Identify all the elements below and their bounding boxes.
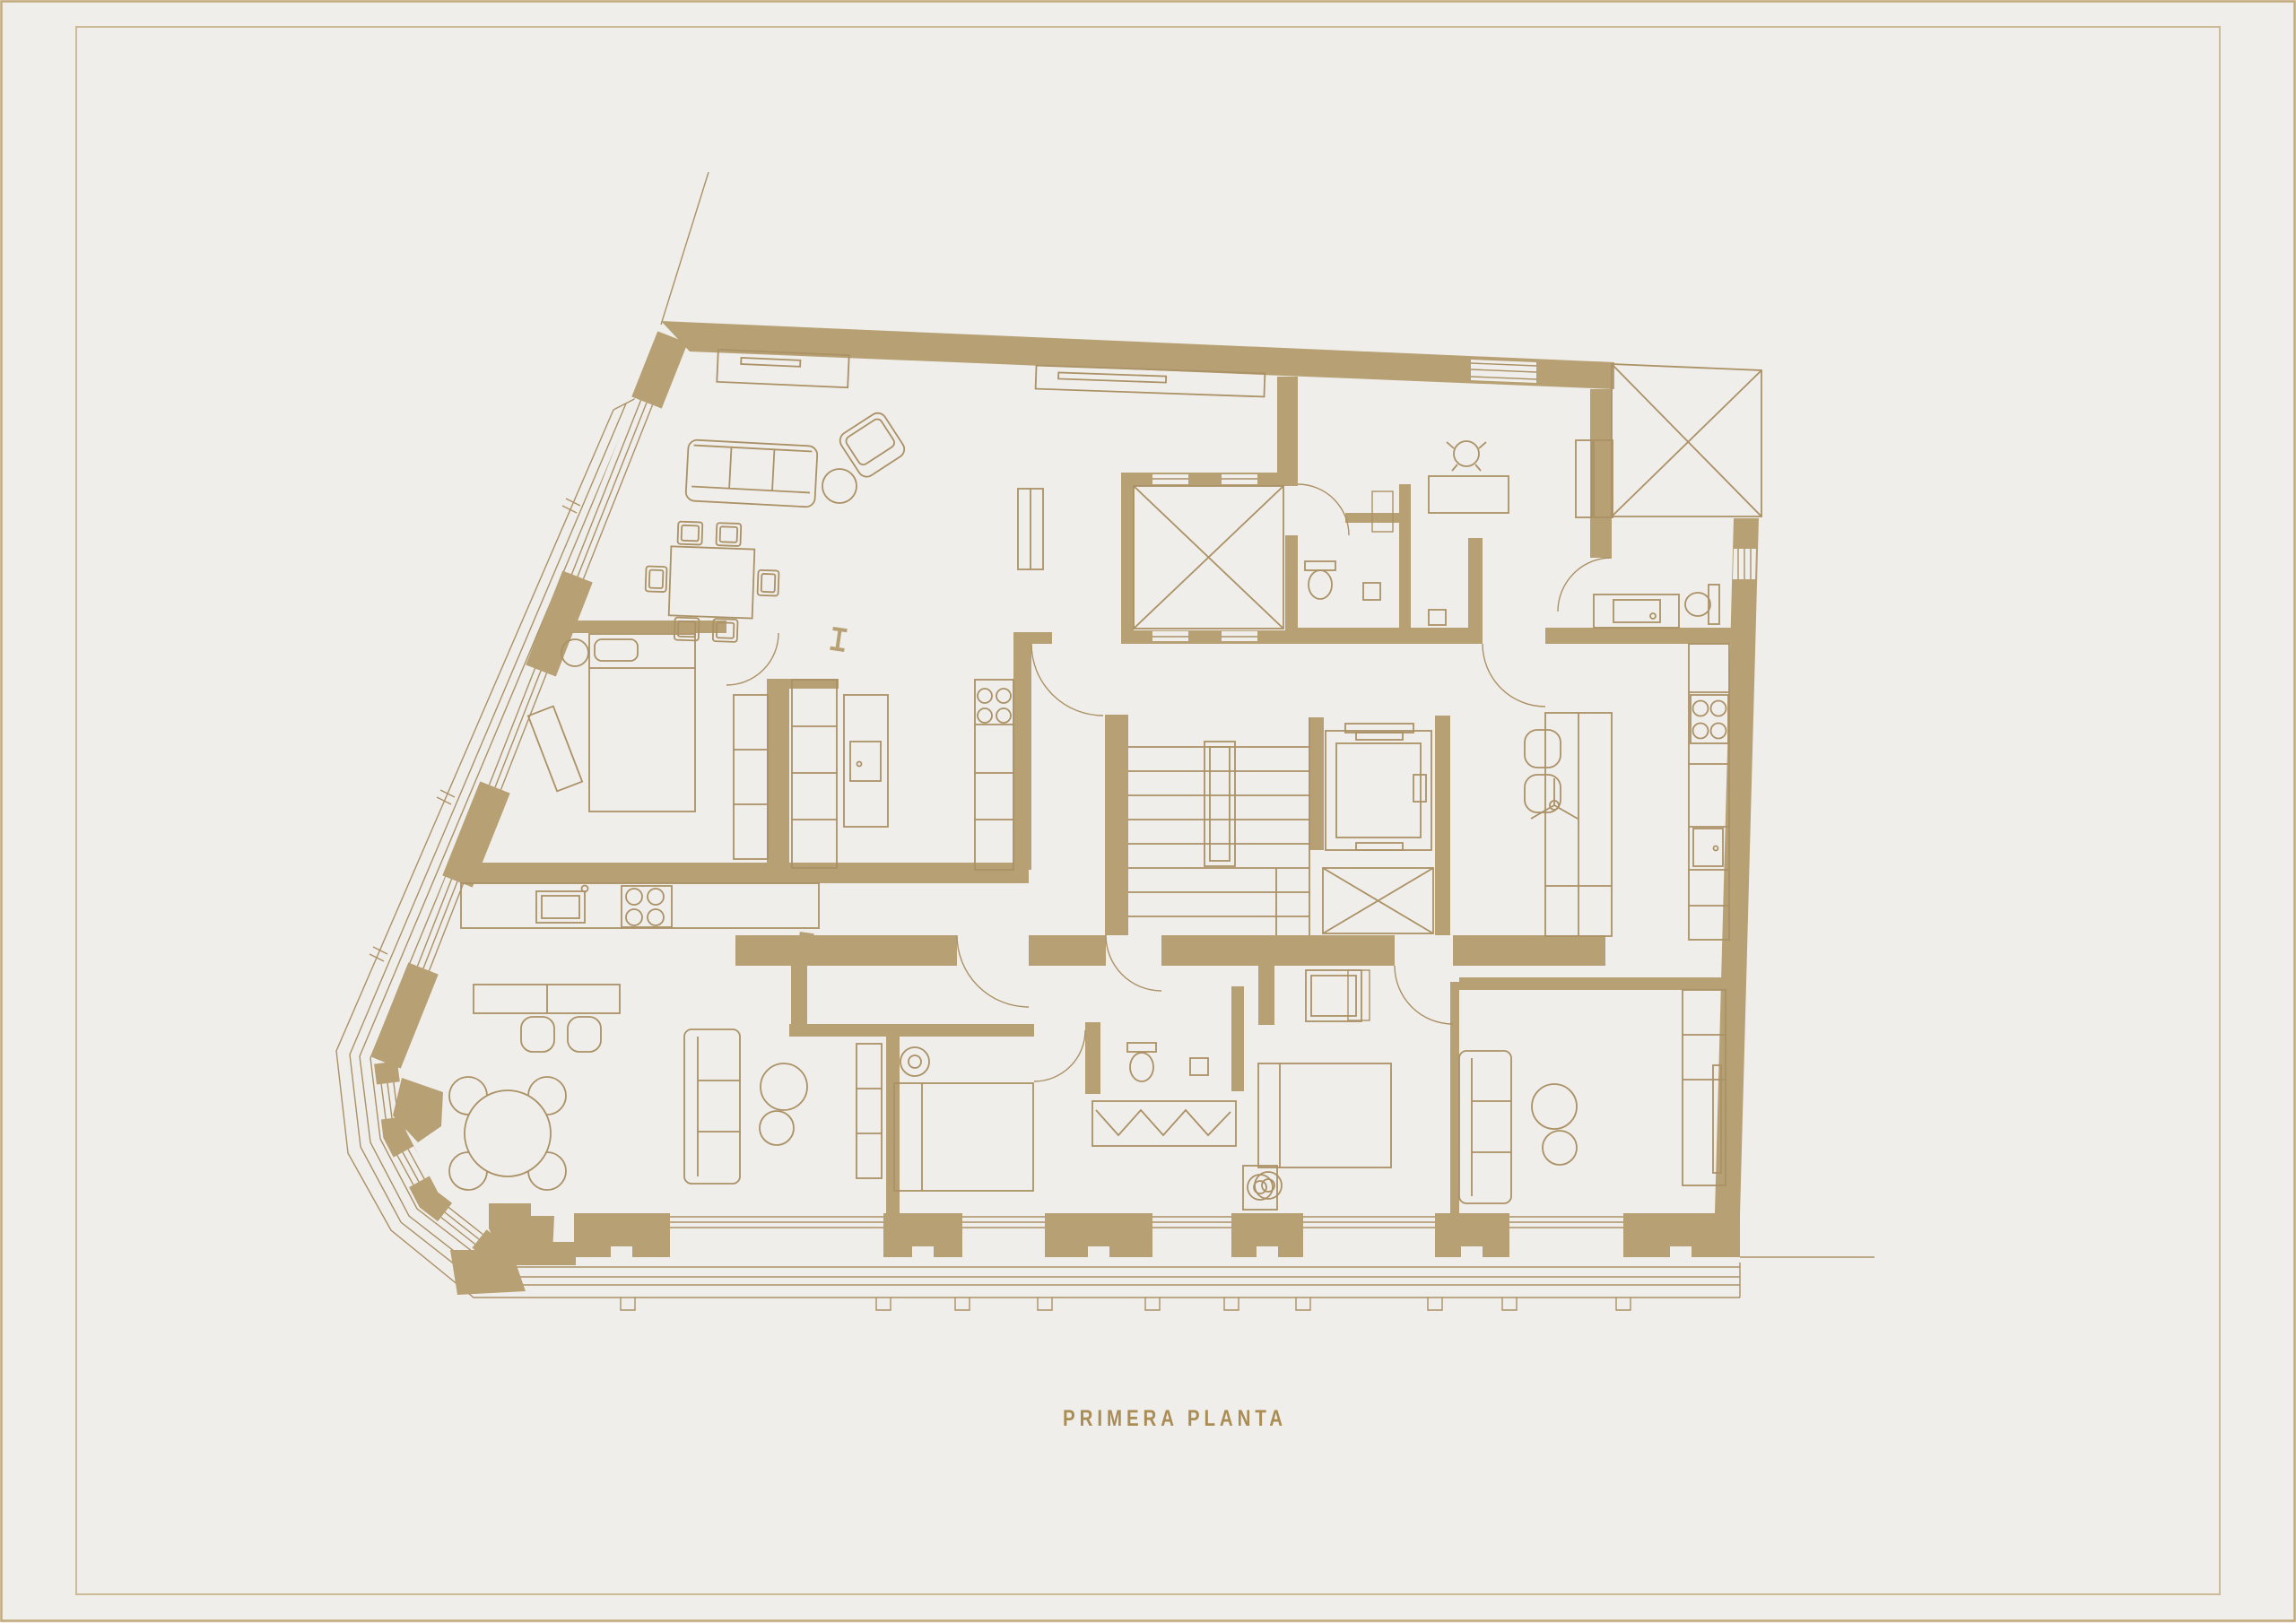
island [1545,713,1612,936]
vanity [1594,595,1679,628]
stool [561,639,588,666]
elevator-car [1336,743,1421,838]
stair-left-wall [1105,715,1128,935]
door-kitchen-corridor [1031,644,1103,716]
desk-chair [1447,441,1486,471]
kitchen-right-wall [1013,632,1031,870]
living-divider-wall [1277,377,1298,473]
patio-top-wall [1121,473,1298,486]
page-frame [2,2,2295,1621]
apt2-bath-wall [1085,1022,1100,1094]
door-bedroom1 [726,633,778,685]
cooktop [1691,695,1728,743]
floor-plan-page: PRIMERA PLANTA [0,0,2296,1623]
deskroom-wall [1468,538,1483,630]
counter [461,883,819,928]
section-marker-icon [831,629,848,650]
side-table [760,1111,794,1145]
side-table [1532,1084,1577,1129]
elevator-right-wall [1435,716,1450,935]
side-table [761,1063,807,1110]
hanging-closet [1092,1101,1236,1146]
bench [528,707,582,792]
closet [1576,440,1592,517]
stair-stringer [1205,742,1235,866]
apt2-top-wall [789,1024,886,1037]
washbasin [1363,583,1380,600]
door-right-hall [1483,644,1545,707]
door-leaf-1 [1372,491,1393,532]
door-annex-room [1558,558,1612,612]
desk [1429,476,1509,513]
balcony-rail-3 [350,404,1740,1285]
column [489,1203,554,1254]
property-line-top [661,172,709,325]
shower [1306,970,1361,1021]
bedroom-divider-wall [1450,982,1459,1213]
section-markers [797,629,848,955]
side-table [822,469,857,503]
island [474,985,620,1013]
pillow [595,639,638,661]
balcony-rail-2 [360,400,1740,1277]
tall-units [792,680,888,868]
outer-border [2,2,2295,1621]
patio-light-well [1134,474,1283,641]
plan-title: PRIMERA PLANTA [1063,1406,1287,1432]
sofa [1459,1051,1511,1203]
armchair [837,410,908,481]
wardrobe [734,695,768,859]
patio-left-wall [1121,473,1134,644]
nightstand [900,1047,929,1076]
corridor-band-4 [1453,935,1605,966]
balcony-rails [336,393,1740,1310]
core-rooms [1305,440,1719,628]
annex-light-well [1612,364,1761,516]
door-hall [1106,935,1161,991]
corridor-band-3 [1161,935,1395,966]
kitchen-left-wall [767,679,789,870]
balcony-rail-1 [370,395,1740,1267]
elevator-door-inner [1356,733,1403,740]
sink [536,886,588,924]
sofa-3-seat [685,439,817,507]
bath-divider-wall [1399,484,1411,628]
wall-cooktop-unit [975,680,1013,870]
bed [894,1083,1033,1191]
wall-counter [1689,644,1729,940]
door-bath [1298,484,1349,535]
patio-right-wall [1285,535,1298,644]
oven [1693,829,1723,866]
round-table [465,1090,551,1176]
hall-vertical-wall [791,966,807,1024]
stool [521,1017,554,1052]
bedroom1-furniture [528,634,768,859]
apt2-bedroom-top-wall [886,1024,1034,1037]
toilet [1127,1043,1156,1081]
stool [1525,730,1561,768]
interior-walls [461,377,1735,1213]
door-bedroom2 [1395,966,1453,1024]
staircase [1128,717,1309,935]
bedroom1-top-wall [552,621,726,633]
apt2-bedroom-left-wall [886,1024,900,1213]
elevator [1326,724,1431,850]
patio-bottom-wall [1121,630,1298,644]
bed [1258,1063,1391,1167]
apt3-bath-wall [1258,966,1274,1025]
terrace [449,1077,566,1190]
bedroom2-top-wall [1459,977,1733,990]
corridor-band-1 [735,935,957,966]
living-room-furniture [644,350,1265,644]
floor-plan-drawing [0,0,2296,1623]
elevator-door-bottom [1356,843,1403,850]
elevator-shaft [1326,731,1431,850]
stool [1525,775,1561,812]
exterior-walls [381,321,1759,1295]
balcony-bracket-line [336,393,1740,1298]
stair-steps [1128,717,1309,935]
hall-band-right [1545,628,1735,644]
stool [568,1017,601,1052]
washbasin [1190,1058,1208,1075]
door-leaf-2 [1348,970,1370,1020]
elevator-mechanism [1413,775,1426,802]
bookcase [1018,489,1043,569]
toilet [1685,585,1719,624]
inner-border [76,27,2220,1594]
small-light-well [1323,868,1433,933]
wardrobe [857,1044,882,1178]
door-apt2-bedroom [1034,1030,1085,1081]
apt2-bath-right-wall [1231,986,1244,1091]
hall-band-left [1298,628,1483,644]
cooktop [622,886,672,927]
toilet [1305,561,1335,599]
corridor-band-2 [1029,935,1106,966]
kitchen2 [1525,644,1729,940]
annex-side-wall-low [1590,520,1612,558]
kitchen-band-wall [461,863,1029,883]
side-table [1543,1131,1577,1165]
door-apt2-entry [957,935,1029,1007]
kitchen-right-stub [1013,632,1052,644]
dining-table [669,546,755,618]
bottom-wall-piers [574,1213,1740,1257]
washbasin [1429,610,1446,625]
sofa [684,1029,740,1184]
elevator-left-wall [1309,717,1324,850]
